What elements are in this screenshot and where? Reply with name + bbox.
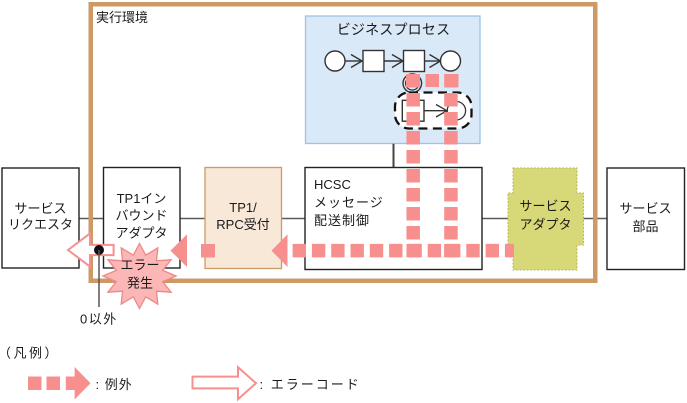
svg-text:アダプタ: アダプタ (519, 217, 571, 232)
svg-text:サービス: サービス (519, 199, 571, 214)
svg-text:実行環境: 実行環境 (96, 10, 148, 25)
svg-text:アダプタ: アダプタ (115, 226, 167, 241)
svg-text:リクエスタ: リクエスタ (8, 217, 73, 232)
svg-text:: 例外: : 例外 (96, 377, 133, 392)
svg-text:RPC受付: RPC受付 (216, 217, 269, 232)
svg-text:ビジネスプロセス: ビジネスプロセス (337, 22, 451, 38)
svg-text:TP1/: TP1/ (229, 200, 257, 215)
svg-text:配送制御: 配送制御 (314, 213, 370, 228)
svg-text:バウンド: バウンド (115, 208, 167, 223)
svg-text:（凡例）: （凡例） (0, 346, 60, 361)
svg-text:0以外: 0以外 (80, 312, 118, 327)
svg-text:サービス: サービス (619, 201, 671, 216)
svg-text:サービス: サービス (14, 201, 66, 216)
svg-text:部品: 部品 (632, 219, 658, 234)
svg-text:HCSC: HCSC (314, 177, 351, 192)
svg-text:メッセージ: メッセージ (314, 195, 384, 210)
svg-text:TP1イン: TP1イン (117, 191, 167, 206)
svg-text:: エラーコード: : エラーコード (260, 377, 361, 392)
svg-text:エラー: エラー (120, 258, 159, 273)
svg-text:発生: 発生 (127, 276, 153, 291)
